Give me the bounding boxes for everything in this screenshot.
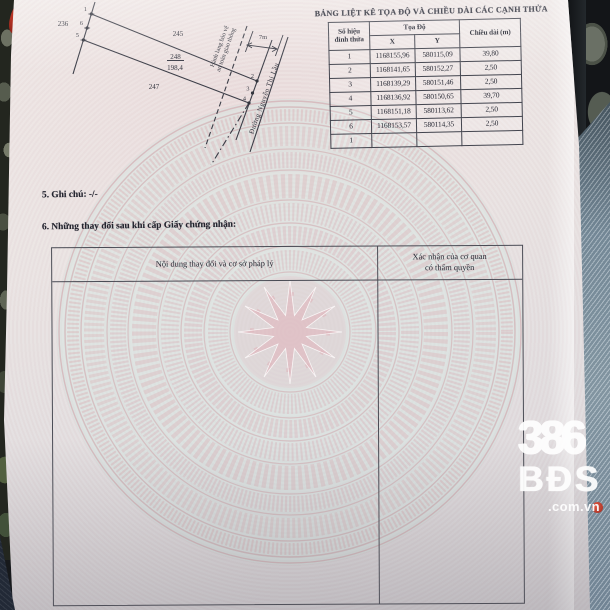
adjacent-parcel-247: 247: [149, 83, 160, 91]
drum-star: [238, 280, 342, 384]
table-row: 4 1168136,92 580150,65 39,70: [330, 88, 522, 106]
table-row: 1: [331, 130, 523, 148]
cell-no: 1: [329, 50, 370, 65]
cadastral-diagram: 1 6 5 2 3 4 236 245 247 248 198,4 7m Hàn…: [30, 0, 310, 230]
road-name-label: Đường Nguyễn Thị Lầu: [247, 61, 280, 135]
cell-x: 1168141,65: [370, 63, 415, 78]
boundary-continuation-line: [211, 103, 249, 165]
header-length: Chiều dài (m): [459, 18, 521, 47]
coordinate-table-title: BẢNG LIỆT KÊ TỌA ĐỘ VÀ CHIỀU DÀI CÁC CẠN…: [315, 5, 527, 18]
changes-table-header: Nội dung thay đổi và cơ sở pháp lý Xác n…: [52, 246, 522, 282]
header-vertex: Số hiệu đỉnh thửa: [328, 22, 370, 51]
corridor-label-line2: an toàn giao thông: [215, 27, 237, 73]
vertex-label: 6: [80, 20, 83, 27]
changes-table: Nội dung thay đổi và cơ sở pháp lý Xác n…: [51, 245, 525, 606]
cell-x: 1168151,18: [371, 105, 416, 120]
header-confirm-column: Xác nhận của cơ quan có thẩm quyền: [377, 246, 522, 280]
cell-y: [417, 132, 462, 147]
watermark-brand: BĐS: [518, 462, 610, 497]
cell-x: 1168153,57: [371, 119, 416, 134]
cell-x: 1168136,92: [371, 91, 416, 106]
cell-y: 580150,65: [416, 90, 461, 105]
cell-len: 2,50: [460, 74, 521, 89]
header-content-column: Nội dung thay đổi và cơ sở pháp lý: [52, 247, 377, 282]
dim-arrowhead-right: [272, 46, 277, 51]
certificate-page: 1 6 5 2 3 4 236 245 247 248 198,4 7m Hàn…: [0, 0, 610, 610]
diagram-lines: [73, 2, 288, 165]
vertex-label: 1: [84, 6, 87, 13]
changes-table-divider: [377, 247, 380, 604]
parcel-top-edge: [91, 14, 257, 81]
drum-rings: [57, 99, 523, 565]
cell-len: 39,70: [461, 88, 522, 103]
cell-y: 580113,62: [416, 104, 461, 119]
vertex-label: 2: [251, 73, 254, 80]
cell-no: 1: [331, 134, 372, 149]
vertex-label: 3: [246, 86, 249, 93]
dim-arrowhead-left: [247, 43, 252, 48]
road-width-label: 7m: [259, 34, 267, 41]
cell-y: 580152,27: [415, 62, 460, 77]
coordinate-table: Số hiệu đỉnh thửa Tọa Độ Chiều dài (m) X…: [328, 18, 524, 149]
cell-len: 2,50: [461, 116, 522, 131]
cell-x: [372, 133, 417, 148]
table-row: 6 1168153,57 580114,35 2,50: [330, 116, 522, 134]
site-watermark: 386 BĐS .com.vn: [518, 414, 610, 515]
header-confirm-line1: Xác nhận của cơ quan: [413, 252, 487, 262]
safety-corridor-line: [205, 26, 247, 148]
adjacent-parcel-245: 245: [173, 30, 184, 38]
cell-no: 2: [329, 64, 370, 79]
cell-len: [462, 130, 523, 145]
dim-tick-left: [245, 31, 253, 52]
table-row: 2 1168141,65 580152,27 2,50: [329, 60, 521, 78]
boundary-line: [73, 2, 95, 74]
header-y: Y: [415, 34, 460, 49]
cell-len: 2,50: [460, 60, 521, 75]
dim-arrow-line: [247, 45, 277, 49]
parcel-number-label: 248: [170, 53, 181, 61]
cell-len: 2,50: [461, 102, 522, 117]
parcel-area-label: 198,4: [167, 64, 183, 72]
table-row: 5 1168151,18 580113,62 2,50: [330, 102, 522, 120]
document-photo: 1 6 5 2 3 4 236 245 247 248 198,4 7m Hàn…: [0, 0, 610, 610]
road-right-edge: [250, 37, 288, 152]
section-note: 5. Ghi chú: -/-: [42, 190, 98, 201]
dim-tick-right: [275, 35, 283, 56]
cell-no: 3: [330, 78, 371, 93]
cell-x: 1168139,29: [371, 77, 416, 92]
cell-no: 4: [330, 92, 371, 107]
cell-no: 5: [330, 106, 371, 121]
header-vertex-line1: Số hiệu: [329, 28, 369, 37]
cell-y: 580114,35: [416, 118, 461, 133]
table-row: 3 1168139,29 580151,46 2,50: [330, 74, 522, 92]
header-vertex-line2: đỉnh thửa: [329, 36, 369, 45]
paper-edge-highlight: [548, 0, 574, 610]
vertex-label: 4: [243, 96, 246, 103]
header-confirm-line2: có thẩm quyền: [425, 263, 474, 273]
watermark-domain: .com.vn: [548, 500, 600, 513]
vertex-labels: 1 6 5 2 3 4: [76, 6, 254, 103]
road-left-edge: [236, 40, 272, 140]
vertex-dots: [82, 12, 259, 104]
cell-y: 580151,46: [415, 76, 460, 91]
cell-len: 39,80: [460, 46, 521, 61]
table-row: 1 1168155,96 580115,09 39,80: [329, 46, 521, 64]
coordinate-table-block: BẢNG LIỆT KÊ TỌA ĐỘ VÀ CHIỀU DÀI CÁC CẠN…: [315, 5, 530, 149]
adjacent-parcel-236: 236: [58, 20, 69, 28]
cell-x: 1168155,96: [370, 49, 415, 64]
header-x: X: [370, 35, 415, 50]
corridor-label-line1: Hành lang bảo vệ: [209, 25, 231, 68]
cell-no: 6: [330, 120, 371, 135]
header-coords: Tọa Độ: [369, 20, 459, 36]
section-changes-heading: 6. Những thay đổi sau khi cấp Giấy chứng…: [42, 220, 236, 233]
cell-y: 580115,09: [415, 48, 460, 63]
vertex-label: 5: [76, 32, 79, 39]
dong-son-drum-watermark: [55, 97, 525, 567]
parcel-bottom-edge: [83, 40, 249, 103]
